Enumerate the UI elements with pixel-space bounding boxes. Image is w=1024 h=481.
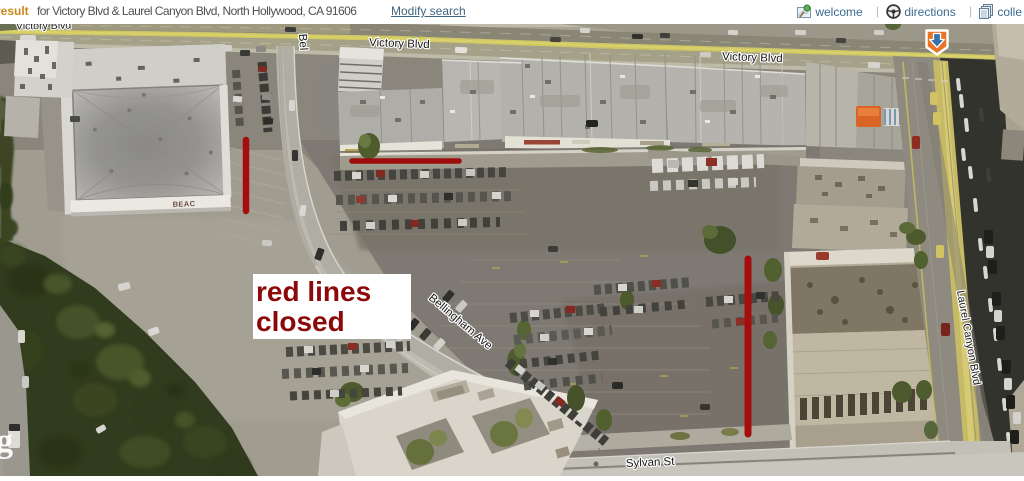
- svg-text:BEAC: BEAC: [172, 199, 195, 209]
- svg-text:Sylvan St: Sylvan St: [626, 456, 676, 470]
- svg-text:Victory Blvd: Victory Blvd: [16, 24, 72, 32]
- svg-text:closed: closed: [256, 306, 345, 337]
- svg-text:Victory Blvd: Victory Blvd: [369, 37, 430, 51]
- svg-text:Victory Blvd: Victory Blvd: [722, 51, 783, 65]
- svg-text:red lines: red lines: [256, 276, 371, 307]
- svg-text:Bel: Bel: [296, 33, 309, 50]
- svg-text:g: g: [0, 423, 13, 460]
